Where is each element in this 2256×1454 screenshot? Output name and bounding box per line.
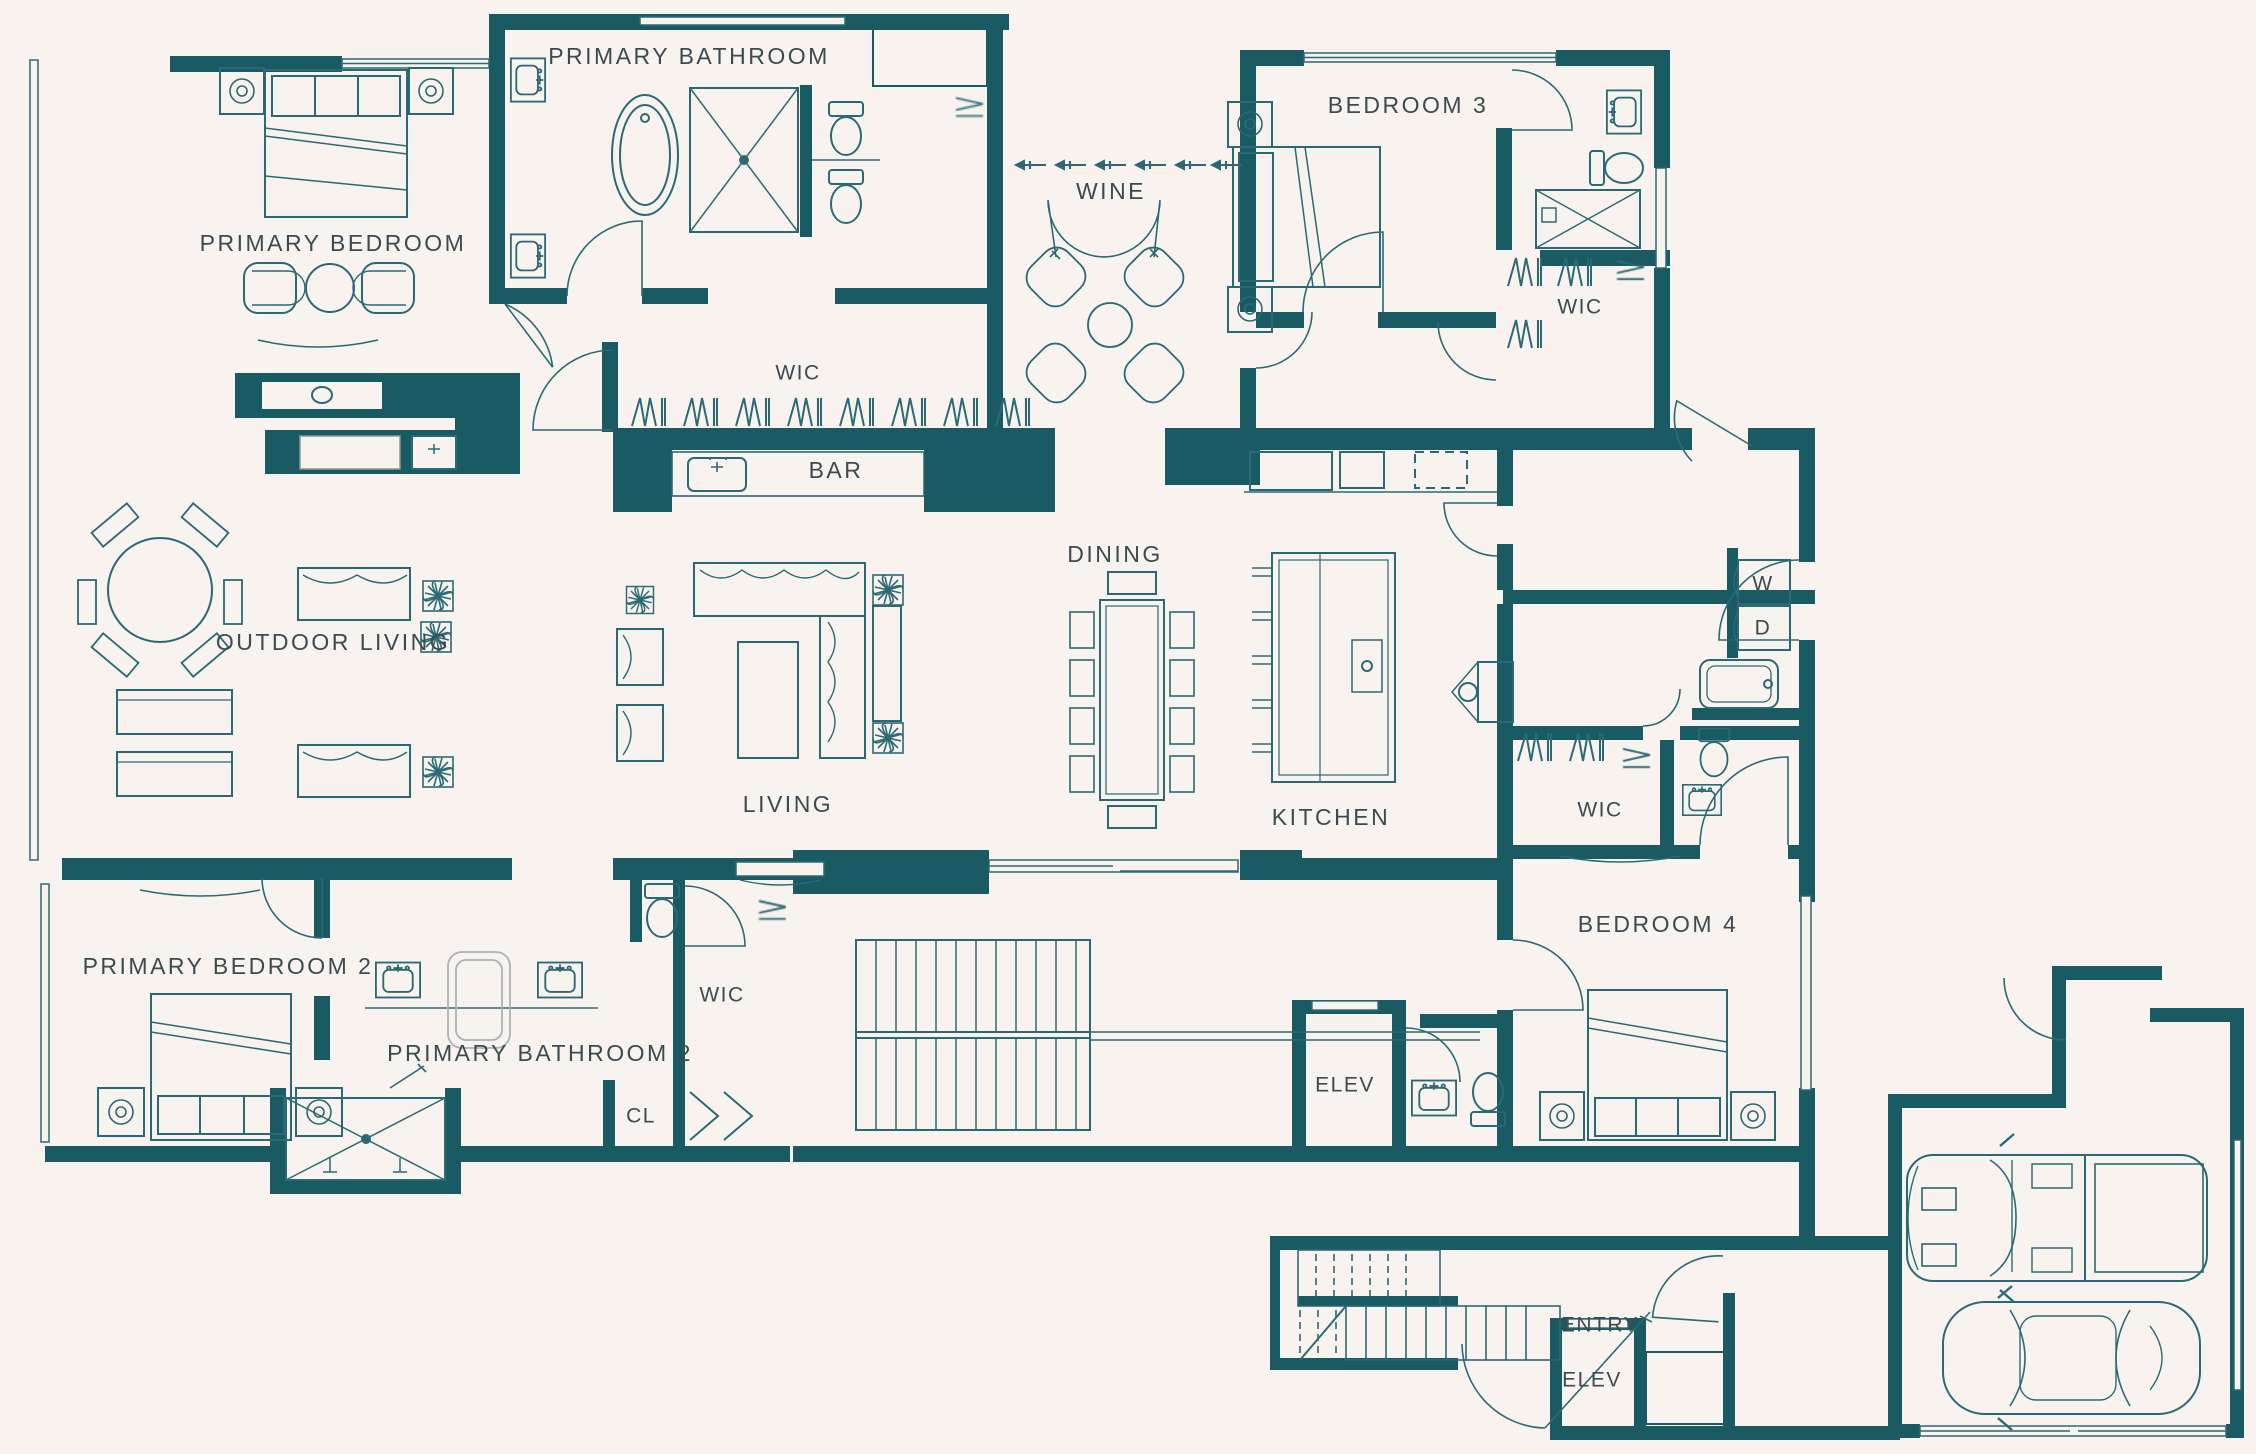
wic-2-closet xyxy=(690,898,786,1140)
label-elevator-main: ELEV xyxy=(1315,1074,1375,1097)
outdoor-kitchen xyxy=(235,340,520,474)
label-closet: CL xyxy=(626,1105,656,1128)
kitchen xyxy=(1244,452,1513,782)
floor-plan-drawing: PRIMARY BATHROOM PRIMARY BEDROOM WINE BE… xyxy=(0,0,2256,1454)
living-furniture xyxy=(617,563,901,885)
label-living: LIVING xyxy=(743,791,833,817)
garage-sedan xyxy=(1943,1286,2200,1430)
main-stairs xyxy=(856,940,1480,1130)
primary-bathroom-2-fixtures xyxy=(286,884,679,1180)
dining-furniture xyxy=(1070,572,1194,828)
label-washer: W xyxy=(1752,573,1773,596)
bar-counter xyxy=(672,452,924,496)
primary-wic xyxy=(632,95,1029,426)
label-entry: ENTRY xyxy=(1561,1314,1639,1337)
bedroom-4-furniture xyxy=(1540,856,1775,1140)
label-kitchen: KITCHEN xyxy=(1272,804,1390,830)
label-dining: DINING xyxy=(1067,541,1163,567)
label-primary-bathroom: PRIMARY BATHROOM xyxy=(548,43,830,69)
floor-plan: PRIMARY BATHROOM PRIMARY BEDROOM WINE BE… xyxy=(0,0,2256,1454)
label-bedroom-4: BEDROOM 4 xyxy=(1578,911,1739,937)
wic-bedroom-4-closet xyxy=(1518,733,1721,842)
label-wic-2: WIC xyxy=(699,984,744,1007)
primary-bedroom-2-furniture xyxy=(98,890,342,1140)
label-elevator-entry: ELEV xyxy=(1562,1369,1622,1392)
bedroom-3-wic xyxy=(1508,258,1648,422)
garage-truck xyxy=(1907,1134,2207,1302)
label-wine: WINE xyxy=(1076,178,1146,204)
label-bedroom-3: BEDROOM 3 xyxy=(1328,92,1489,118)
label-wic-bedroom-4: WIC xyxy=(1577,799,1622,822)
label-dryer: D xyxy=(1755,617,1772,640)
label-primary-bedroom-2: PRIMARY BEDROOM 2 xyxy=(83,953,374,979)
label-primary-bedroom: PRIMARY BEDROOM xyxy=(200,230,467,256)
hatched-shafts xyxy=(873,26,1956,1424)
label-bar: BAR xyxy=(809,457,864,483)
label-primary-bathroom-2: PRIMARY BATHROOM 2 xyxy=(387,1040,693,1066)
label-wic-bedroom-3: WIC xyxy=(1557,296,1602,319)
primary-bathroom-fixtures xyxy=(511,58,880,277)
label-wic-primary: WIC xyxy=(775,362,820,385)
label-outdoor-living: OUTDOOR LIVING xyxy=(216,629,450,655)
walls xyxy=(45,14,2244,1440)
primary-bedroom-furniture xyxy=(220,68,453,313)
